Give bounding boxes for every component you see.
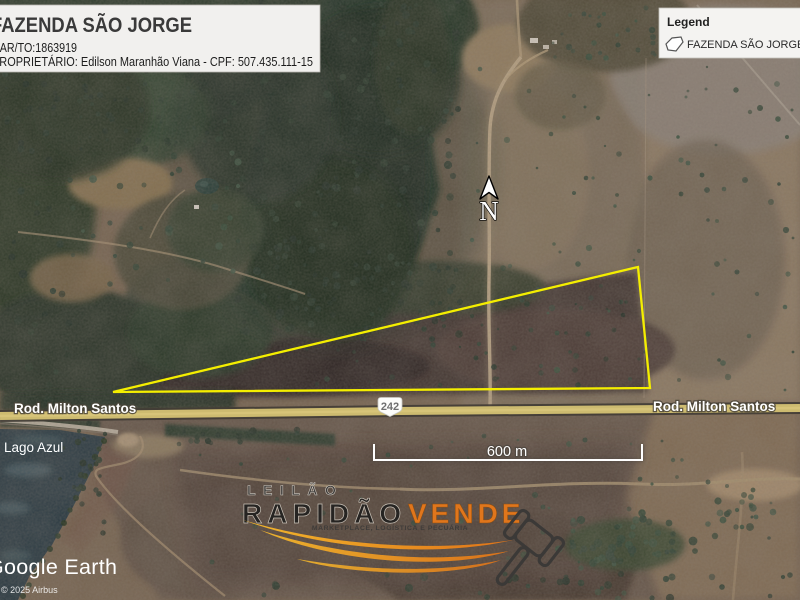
svg-text:FAZENDA SÃO JORGE: FAZENDA SÃO JORGE (0, 14, 192, 37)
svg-text:Legend: Legend (667, 15, 710, 29)
svg-text:FAZENDA SÃO JORGE: FAZENDA SÃO JORGE (687, 38, 800, 51)
svg-text:N: N (479, 196, 499, 226)
svg-text:600 m: 600 m (487, 444, 527, 460)
svg-text:Google Earth: Google Earth (0, 555, 117, 579)
svg-text:Lago Azul: Lago Azul (4, 440, 63, 455)
svg-text:PROPRIETÁRIO: Edilson Maranhão: PROPRIETÁRIO: Edilson Maranhão Viana - C… (0, 54, 313, 69)
svg-text:LEILÃO: LEILÃO (247, 481, 343, 498)
svg-text:© 2025 Airbus: © 2025 Airbus (1, 585, 58, 595)
svg-text:242: 242 (381, 401, 399, 413)
svg-text:CAR/TO:1863919: CAR/TO:1863919 (0, 40, 77, 55)
svg-text:MARKETPLACE, LOGÍSTICA E PECUÁ: MARKETPLACE, LOGÍSTICA E PECUÁRIA (312, 523, 468, 532)
svg-text:Rod. Milton Santos: Rod. Milton Santos (653, 399, 775, 414)
svg-text:Rod. Milton Santos: Rod. Milton Santos (14, 401, 136, 416)
